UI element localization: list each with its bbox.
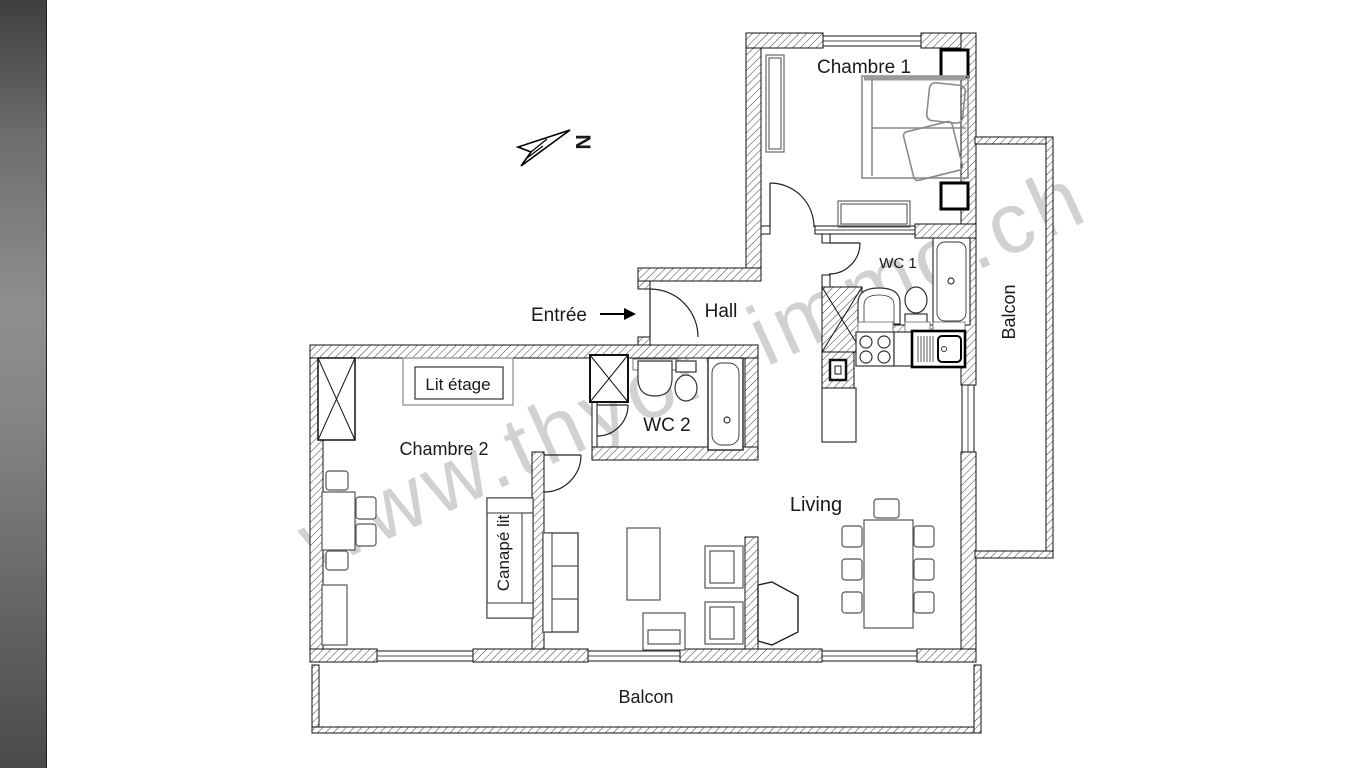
label-lit-etage: Lit étage: [425, 375, 490, 394]
label-balcon-right: Balcon: [999, 284, 1019, 339]
chimney-flue: [822, 352, 854, 388]
kitchen-counter-low: [822, 388, 856, 442]
tv-stand: [643, 613, 685, 650]
label-balcon-bottom: Balcon: [618, 687, 673, 707]
pillar-top: [941, 50, 968, 77]
sofa: [543, 533, 578, 632]
label-wc2: WC 2: [643, 415, 691, 436]
armchair: [705, 602, 743, 644]
entrance-arrow-icon: [600, 308, 636, 320]
shower: [933, 238, 970, 325]
wardrobe-shaft-chambre2: [318, 358, 355, 440]
north-label: N: [571, 134, 594, 149]
wardrobe: [766, 55, 784, 152]
double-bed: [862, 76, 968, 181]
floor-plan-drawing: www.thyon-immo.ch: [0, 0, 1360, 768]
toilet-wc2: [675, 361, 697, 401]
label-living: Living: [790, 494, 842, 516]
desk: [322, 585, 347, 645]
label-entree: Entrée: [531, 305, 587, 326]
door-chambre1: [770, 183, 814, 227]
coffee-table: [627, 528, 660, 600]
label-chambre1: Chambre 1: [817, 57, 911, 78]
north-arrow: N: [518, 130, 594, 166]
label-wc1: WC 1: [879, 255, 917, 272]
label-chambre2: Chambre 2: [399, 439, 488, 459]
chambre1-furniture: [766, 55, 968, 227]
floor-plan-page: www.thyon-immo.ch: [0, 0, 1360, 768]
label-canape-lit: Canapé lit: [494, 514, 513, 591]
counter: [894, 332, 912, 366]
stove: [856, 332, 894, 366]
sink-unit: [912, 331, 965, 367]
toilet-wc1: [905, 287, 927, 325]
washbasin-wc2: [638, 361, 672, 396]
label-hall: Hall: [705, 301, 738, 322]
armchair: [705, 546, 743, 588]
fireplace: [758, 582, 798, 645]
shaft-wc2: [590, 355, 628, 402]
pillar-bottom: [941, 183, 968, 209]
dining-set: [842, 499, 934, 628]
living-furniture: [543, 499, 934, 650]
wall-cabinet: [858, 322, 893, 332]
bathtub: [708, 358, 743, 450]
